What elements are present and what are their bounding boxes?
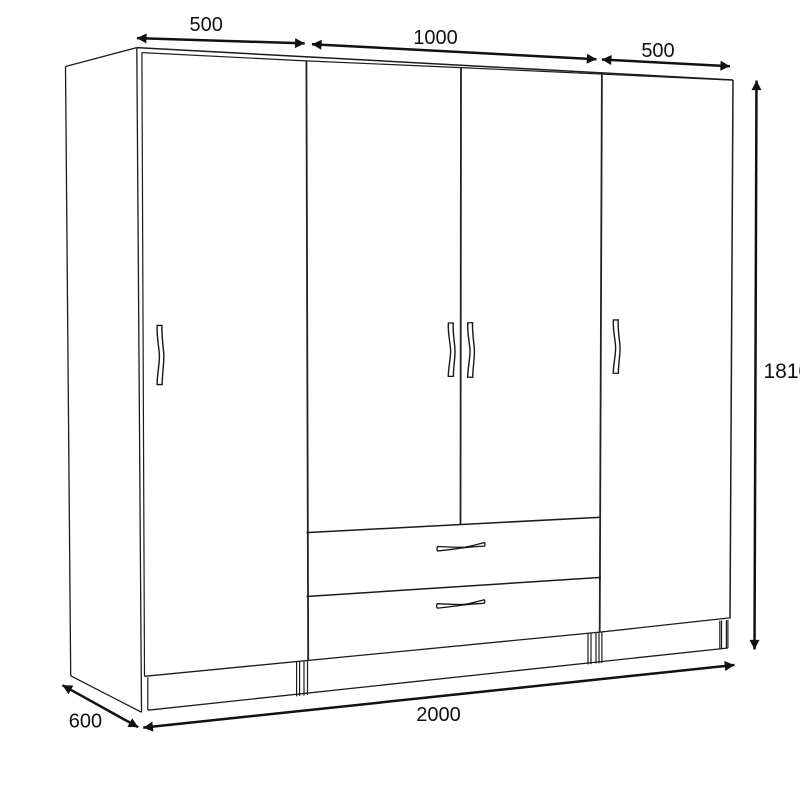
svg-text:500: 500 (190, 14, 223, 36)
svg-text:2000: 2000 (416, 704, 461, 726)
svg-text:600: 600 (69, 711, 102, 733)
svg-text:500: 500 (641, 40, 674, 62)
svg-text:1000: 1000 (413, 27, 458, 49)
svg-text:1810: 1810 (764, 360, 800, 383)
